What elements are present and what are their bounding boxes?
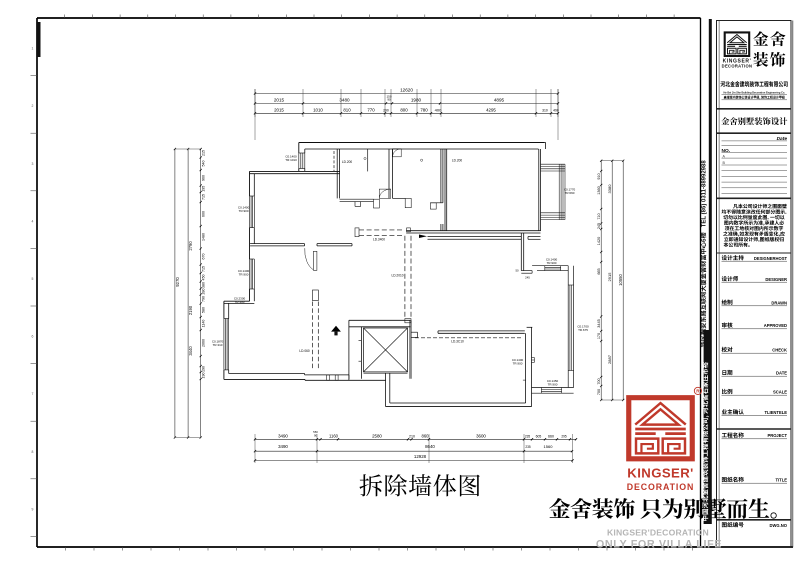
svg-text:3380: 3380 [607,184,612,194]
svg-text:600: 600 [202,211,206,217]
svg-text:860: 860 [422,433,430,438]
svg-text:4295: 4295 [486,107,496,112]
svg-text:710: 710 [597,213,601,219]
svg-text:450: 450 [202,275,206,281]
svg-text:8: 8 [32,450,34,454]
svg-text:190: 190 [202,373,206,379]
svg-text:NO.: NO. [722,148,731,154]
svg-text:B: B [723,161,726,165]
svg-text:3: 3 [32,162,34,166]
svg-text:KINGSER': KINGSER' [627,466,693,481]
svg-text:DECORATION: DECORATION [722,64,753,69]
svg-text:1420: 1420 [597,237,601,245]
svg-text:DWG.NO: DWG.NO [770,523,788,528]
svg-text:CHECK: CHECK [772,348,787,353]
svg-text:235: 235 [525,445,531,449]
svg-text:LD.3C10: LD.3C10 [451,340,464,344]
svg-text:12620: 12620 [400,88,413,93]
svg-text:1010: 1010 [313,107,323,112]
svg-text:3445: 3445 [597,319,601,327]
svg-text:790: 790 [202,296,206,302]
svg-text:10550: 10550 [618,274,623,286]
svg-text:540: 540 [202,161,206,167]
svg-text:580: 580 [202,307,206,313]
svg-text:660: 660 [548,434,554,438]
svg-text:TITLE: TITLE [776,478,788,483]
svg-text:1160: 1160 [329,433,339,438]
svg-text:2060: 2060 [202,339,206,347]
svg-text:SCALE: SCALE [773,390,787,395]
svg-text:215: 215 [202,150,206,156]
svg-text:810: 810 [343,107,351,112]
svg-text:715: 715 [202,266,206,272]
svg-text:TR.675: TR.675 [578,328,588,332]
svg-text:4895: 4895 [494,97,505,102]
svg-text:2887: 2887 [607,354,612,364]
svg-text:He Bei Jin She Building Decora: He Bei Jin She Building Decoration Engin… [723,91,785,94]
svg-text:6: 6 [32,335,34,339]
svg-text:DRAWN: DRAWN [771,300,787,305]
svg-text:DATE: DATE [776,371,787,376]
svg-text:DECORATION: DECORATION [627,482,694,492]
svg-text:4: 4 [32,219,34,223]
svg-text:170: 170 [597,333,601,339]
svg-text:LD.060: LD.060 [299,349,310,353]
svg-text:3440: 3440 [188,346,193,356]
svg-text:2015: 2015 [274,97,285,102]
svg-text:2790: 2790 [188,241,193,251]
svg-text:700: 700 [597,378,601,384]
svg-text:50: 50 [515,269,519,273]
svg-text:TR:660: TR:660 [565,191,575,195]
svg-text:9270: 9270 [175,277,180,287]
svg-text:2190: 2190 [188,305,193,315]
svg-text:DESIGNERHOST: DESIGNERHOST [754,256,788,261]
svg-text:LD.3400: LD.3400 [373,238,385,242]
svg-text:310: 310 [542,108,548,112]
svg-text:1560: 1560 [544,444,554,449]
svg-text:A: A [723,154,726,158]
svg-text:780: 780 [420,107,428,112]
svg-text:KINGSER'DECORATION: KINGSER'DECORATION [607,528,709,538]
svg-text:TR.900: TR.900 [547,261,557,265]
svg-text:910: 910 [597,173,601,179]
svg-text:605: 605 [536,434,542,438]
svg-text:235: 235 [525,434,531,438]
svg-text:9: 9 [32,507,34,511]
svg-text:1980: 1980 [411,97,422,102]
svg-text:195: 195 [202,186,206,192]
svg-text:1360: 1360 [597,186,601,194]
svg-text:1140: 1140 [202,320,206,328]
svg-text:245: 245 [525,276,530,280]
svg-text:LD.200: LD.200 [342,160,353,164]
svg-text:TR.900: TR.900 [239,209,249,213]
svg-text:295: 295 [561,434,567,438]
svg-text:TR.900: TR.900 [239,273,249,277]
svg-text:PROJECT: PROJECT [767,433,787,438]
svg-text:LD.200: LD.200 [452,159,463,163]
svg-text:R: R [696,389,700,394]
svg-text:8640: 8640 [425,444,435,449]
svg-text:TR.900: TR.900 [548,383,558,387]
svg-text:TR.310: TR.310 [213,343,223,347]
svg-text:3490: 3490 [278,444,288,449]
svg-text:2580: 2580 [372,433,382,438]
svg-text:TR.900: TR.900 [513,362,523,366]
svg-text:715: 715 [202,194,206,200]
svg-text:90: 90 [387,98,391,102]
svg-text:2015: 2015 [274,107,284,112]
svg-text:1480: 1480 [202,233,206,241]
svg-text:380: 380 [202,282,206,288]
svg-text:2: 2 [32,104,34,108]
svg-text:APPROVED: APPROVED [764,323,787,328]
svg-text:2915: 2915 [607,272,612,282]
svg-text:960: 960 [202,175,206,181]
svg-text:5: 5 [32,277,34,281]
svg-text:245: 245 [597,223,601,229]
svg-text:TEL (86) 0311-88992988: TEL (86) 0311-88992988 [702,160,708,228]
svg-text:DESIGNER: DESIGNER [765,277,787,282]
svg-text:770: 770 [367,107,375,112]
svg-text:665: 665 [597,268,601,274]
svg-text:800: 800 [400,107,408,112]
svg-text:12928: 12928 [414,454,427,459]
svg-text:TR:1010: TR:1010 [285,158,297,162]
svg-text:670: 670 [202,254,206,260]
svg-text:210: 210 [409,434,415,438]
svg-text:ONLY FOR VILLA LIFE: ONLY FOR VILLA LIFE [596,539,722,551]
svg-text:7: 7 [32,392,34,396]
svg-text:TR.300: TR.300 [235,300,245,304]
svg-text:700: 700 [597,389,601,395]
svg-text:3490: 3490 [278,433,288,438]
svg-text:280: 280 [202,289,206,295]
svg-text:1: 1 [32,47,34,51]
svg-text:290: 290 [383,108,389,112]
svg-text:3600: 3600 [476,433,486,438]
svg-text:TLIENTELE: TLIENTELE [764,410,787,415]
svg-text:190: 190 [202,366,206,372]
svg-text:LD.2010: LD.2010 [391,274,403,278]
